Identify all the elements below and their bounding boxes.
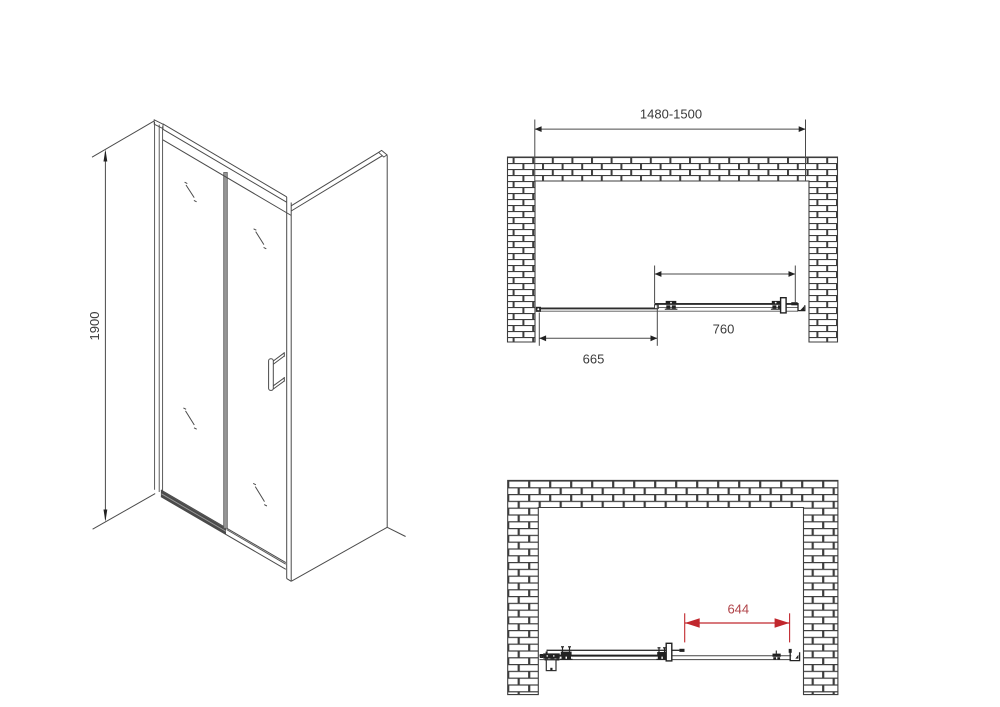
svg-text:1480-1500: 1480-1500 (640, 107, 702, 122)
svg-text:760: 760 (713, 322, 735, 337)
svg-text:1900: 1900 (87, 312, 102, 341)
svg-text:644: 644 (727, 602, 749, 617)
svg-text:665: 665 (583, 352, 605, 367)
